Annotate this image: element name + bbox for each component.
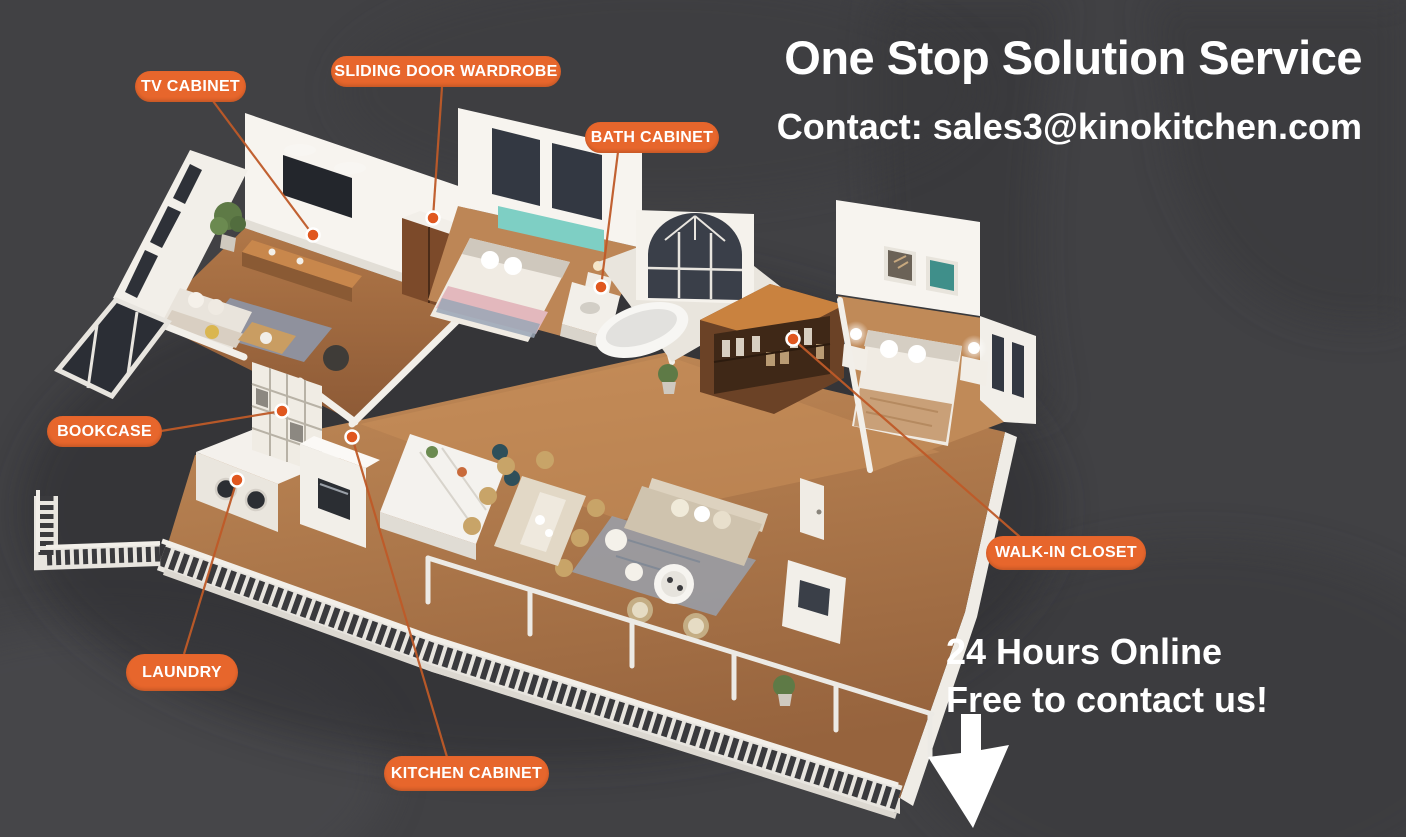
label-walk-in-closet: WALK-IN CLOSET: [986, 536, 1146, 570]
cta-text: 24 Hours Online Free to contact us!: [946, 628, 1268, 724]
cta-line1: 24 Hours Online: [946, 628, 1268, 676]
label-bath-cabinet: BATH CABINET: [585, 122, 719, 153]
contact-email: Contact: sales3@kinokitchen.com: [777, 106, 1362, 148]
label-bookcase: BOOKCASE: [47, 416, 162, 447]
label-tv-cabinet: TV CABINET: [135, 71, 246, 102]
cta-line2: Free to contact us!: [946, 676, 1268, 724]
label-sliding-door-wardrobe: SLIDING DOOR WARDROBE: [331, 56, 561, 87]
promo-banner: TV CABINET SLIDING DOOR WARDROBE BATH CA…: [0, 0, 1406, 837]
page-title: One Stop Solution Service: [784, 30, 1362, 85]
label-laundry: LAUNDRY: [126, 654, 238, 691]
label-kitchen-cabinet: KITCHEN CABINET: [384, 756, 549, 791]
